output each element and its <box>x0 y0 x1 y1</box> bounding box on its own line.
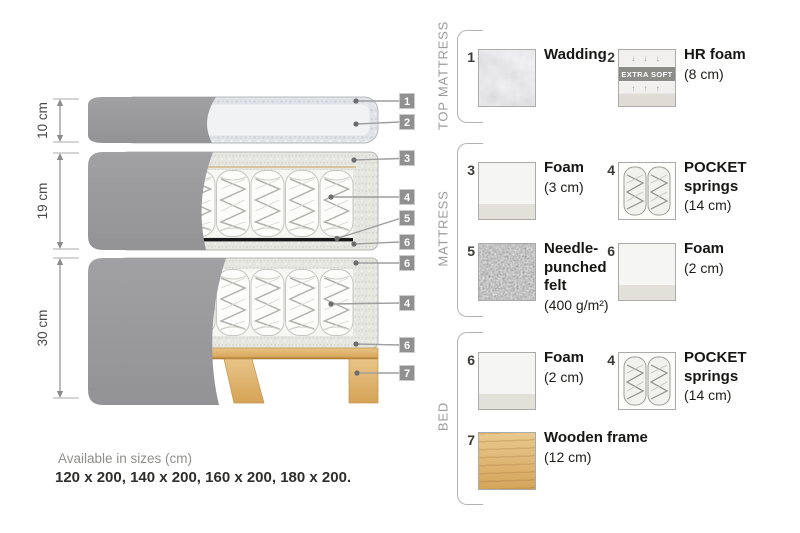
legend-item-title: Foam <box>684 240 724 259</box>
legend-item-number: 5 <box>455 243 478 259</box>
legend-item-number: 7 <box>455 432 478 448</box>
hr-foam-swatch: ↓ ↓ ↓ EXTRA SOFT ↑ ↑ ↑ <box>618 49 676 107</box>
svg-text:4: 4 <box>404 298 411 310</box>
dimension-10cm: 10 cm <box>35 99 79 142</box>
legend-item-number: 3 <box>455 162 478 178</box>
legend-item-title: Foam <box>544 349 584 368</box>
svg-text:4: 4 <box>404 192 411 204</box>
legend-item-text: POCKET springs (14 cm) <box>684 349 747 404</box>
legend-item-text: Foam (2 cm) <box>684 240 724 277</box>
legend-item-size: (2 cm) <box>544 368 584 386</box>
legend-item-title: Wooden frame <box>544 429 648 448</box>
legend-item-text: POCKET springs (14 cm) <box>684 159 747 214</box>
foam-swatch <box>618 243 676 301</box>
legend-item-title: POCKET springs <box>684 159 747 196</box>
svg-text:6: 6 <box>404 340 410 352</box>
available-sizes-list: 120 x 200, 140 x 200, 160 x 200, 180 x 2… <box>55 469 351 486</box>
legend-item-size: (2 cm) <box>684 259 724 277</box>
legend-item-size: (14 cm) <box>684 196 747 214</box>
arrows-down-icon: ↓ ↓ ↓ <box>631 55 662 63</box>
dimension-label: 30 cm <box>35 310 50 347</box>
pocket-springs-swatch <box>618 352 676 410</box>
bed-layer <box>88 258 378 405</box>
legend-item-wadding: 1 Wadding <box>455 49 607 107</box>
infographic-page: 10 cm 19 cm 30 cm <box>0 0 800 533</box>
legend-item-title: POCKET springs <box>684 349 747 386</box>
svg-text:3: 3 <box>404 153 410 165</box>
legend-item-text: Foam (3 cm) <box>544 159 584 196</box>
legend-item-number: 6 <box>455 352 478 368</box>
legend-item-text: Foam (2 cm) <box>544 349 584 386</box>
legend-item-foam-2cm-bed: 6 Foam (2 cm) <box>455 352 584 410</box>
legend-item-number: 4 <box>595 162 618 178</box>
svg-text:7: 7 <box>404 368 410 380</box>
arrows-up-icon: ↑ ↑ ↑ <box>631 85 662 93</box>
callout-marker-7: 7 <box>400 366 415 381</box>
callout-marker-4b: 4 <box>400 296 415 311</box>
legend-item-size: (8 cm) <box>684 65 746 83</box>
foam-swatch <box>478 162 536 220</box>
callout-marker-4: 4 <box>400 190 415 205</box>
svg-text:5: 5 <box>404 213 410 225</box>
callout-marker-6c: 6 <box>400 338 415 353</box>
section-label-bed: BED <box>436 347 451 487</box>
legend-item-number: 2 <box>595 49 618 65</box>
legend-item-hr-foam: 2 ↓ ↓ ↓ EXTRA SOFT ↑ ↑ ↑ HR foam (8 cm) <box>595 49 746 107</box>
callout-marker-6: 6 <box>400 235 415 250</box>
foam-swatch <box>478 352 536 410</box>
mattress-layer <box>88 152 378 250</box>
pocket-springs-swatch <box>618 162 676 220</box>
wadding-swatch <box>478 49 536 107</box>
available-sizes-caption: Available in sizes (cm) <box>58 451 192 466</box>
fabric-cover <box>88 97 216 143</box>
fabric-cover <box>88 258 226 405</box>
svg-text:6: 6 <box>404 237 410 249</box>
legend-item-needle-punched-felt: 5 Needle- punched felt (400 g/m²) <box>455 243 609 314</box>
legend-item-title: HR foam <box>684 46 746 65</box>
dimension-label: 10 cm <box>35 102 50 139</box>
callout-marker-5: 5 <box>400 211 415 226</box>
legend-item-title: Foam <box>544 159 584 178</box>
wood-swatch <box>478 432 536 490</box>
section-label-top-mattress: TOP MATTRESS <box>436 6 451 146</box>
legend-item-size: (14 cm) <box>684 386 747 404</box>
legend-item-size: (3 cm) <box>544 178 584 196</box>
legend-item-number: 6 <box>595 243 618 259</box>
legend-item-foam-2cm-mattress: 6 Foam (2 cm) <box>595 243 724 301</box>
svg-text:1: 1 <box>404 96 410 108</box>
fabric-cover <box>88 152 213 250</box>
legend-item-foam-3cm: 3 Foam (3 cm) <box>455 162 584 220</box>
dimension-19cm: 19 cm <box>35 153 79 249</box>
legend-item-pocket-springs-bed: 4 POCKET springs (14 cm) <box>595 352 747 410</box>
legend-item-wooden-frame: 7 Wooden frame (12 cm) <box>455 432 648 490</box>
legend-item-number: 4 <box>595 352 618 368</box>
felt-swatch <box>478 243 536 301</box>
extra-soft-badge: EXTRA SOFT <box>618 66 676 82</box>
legend-item-number: 1 <box>455 49 478 65</box>
legend-item-pocket-springs-mattress: 4 POCKET springs (14 cm) <box>595 162 747 220</box>
svg-text:6: 6 <box>404 258 410 270</box>
dimension-30cm: 30 cm <box>35 258 79 398</box>
callout-marker-3: 3 <box>400 151 415 166</box>
top-mattress-layer <box>88 97 378 143</box>
callout-marker-2: 2 <box>400 115 415 130</box>
callout-markers: 1 2 3 4 5 6 6 4 6 7 <box>400 94 415 381</box>
legend-item-text: Wooden frame (12 cm) <box>544 429 648 466</box>
callout-marker-6b: 6 <box>400 256 415 271</box>
legend-item-text: HR foam (8 cm) <box>684 46 746 83</box>
section-label-mattress: MATTRESS <box>436 159 451 299</box>
dimension-label: 19 cm <box>35 183 50 220</box>
legend-item-size: (12 cm) <box>544 448 648 466</box>
callout-marker-1: 1 <box>400 94 415 109</box>
svg-text:2: 2 <box>404 117 410 129</box>
